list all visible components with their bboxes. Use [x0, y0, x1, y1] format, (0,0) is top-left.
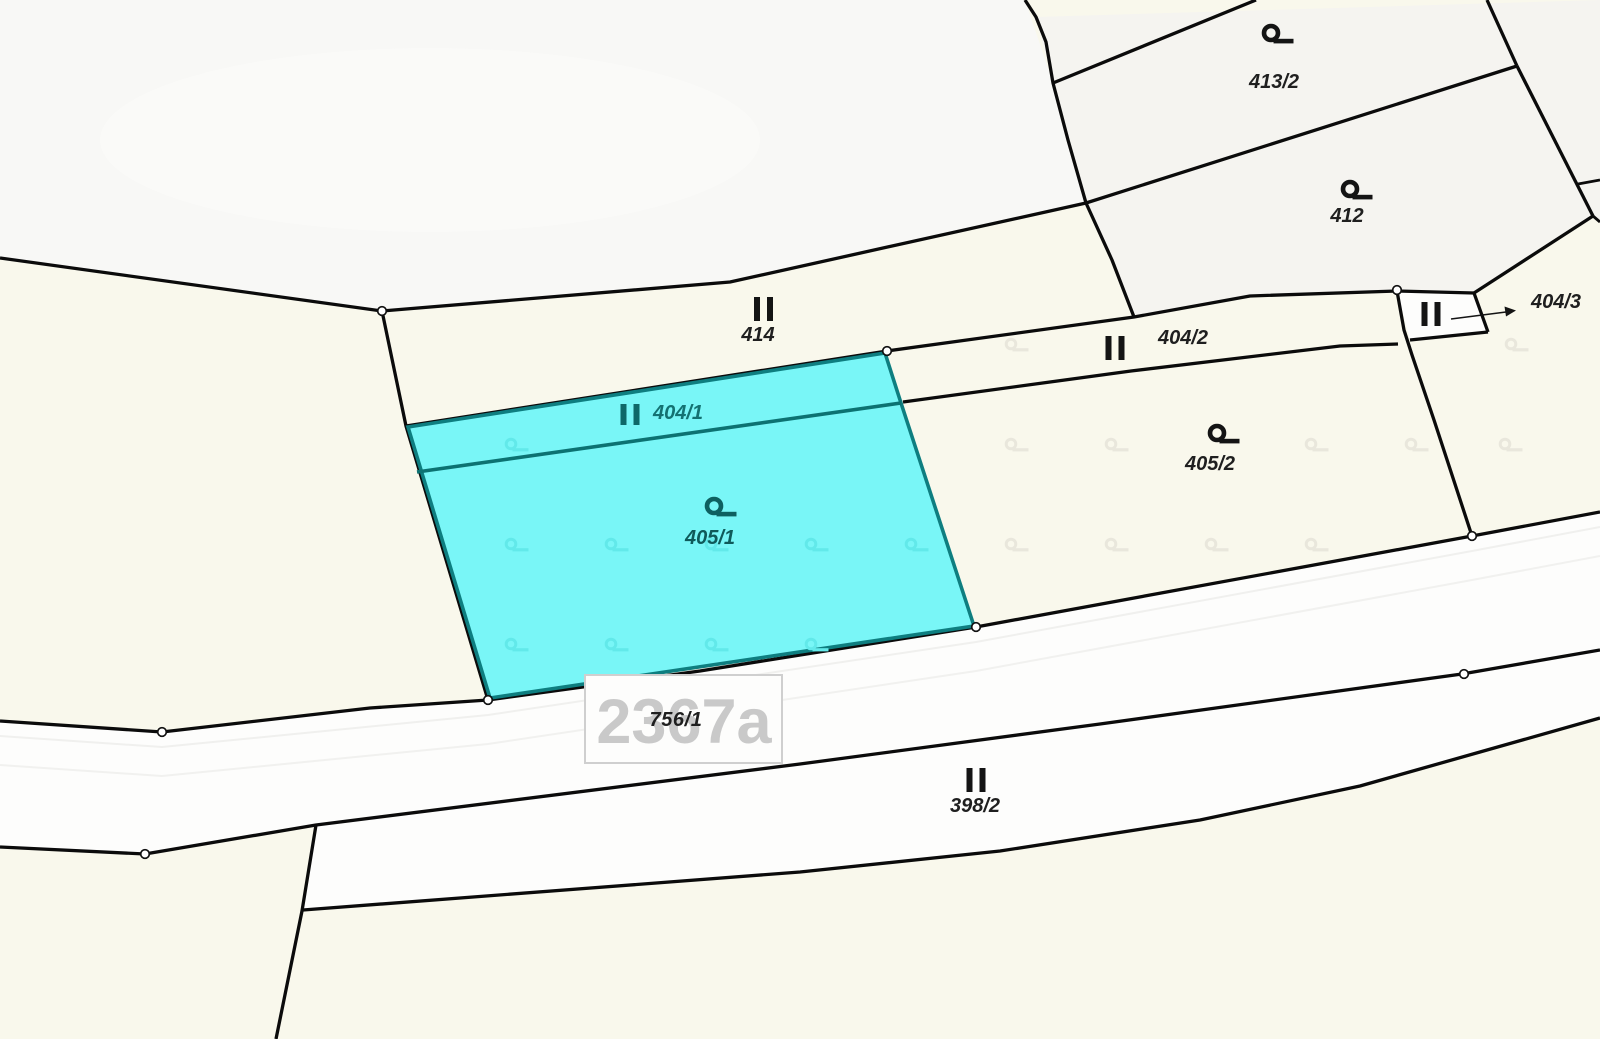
svg-text:414: 414 [740, 324, 774, 346]
svg-text:405/2: 405/2 [1184, 453, 1235, 475]
svg-text:756/1: 756/1 [649, 709, 702, 731]
svg-text:404/3: 404/3 [1530, 291, 1581, 313]
svg-text:412: 412 [1329, 205, 1363, 227]
svg-text:404/2: 404/2 [1157, 327, 1208, 349]
svg-text:413/2: 413/2 [1248, 71, 1299, 93]
svg-text:404/1: 404/1 [652, 402, 703, 424]
svg-text:405/1: 405/1 [684, 527, 735, 549]
svg-text:398/2: 398/2 [950, 795, 1000, 817]
